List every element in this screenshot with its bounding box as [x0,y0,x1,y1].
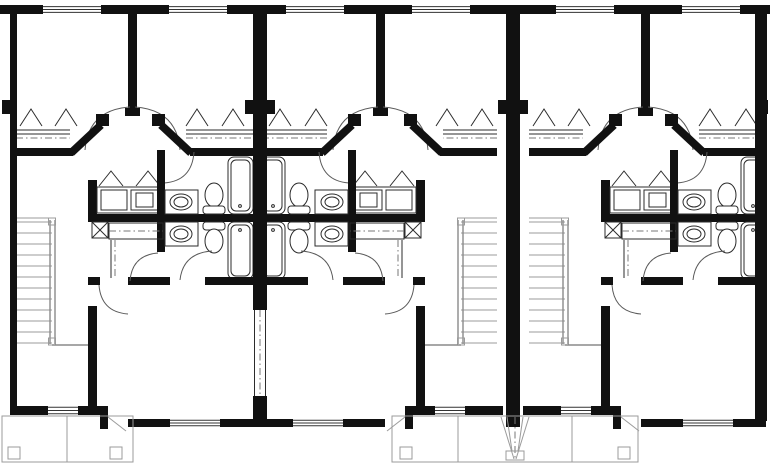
right-wall-pilaster [760,100,768,114]
right-wall [755,5,767,421]
left-wall [10,5,17,415]
left-wall-pilaster [2,100,10,114]
porch-post [400,447,412,459]
porch-post [618,447,630,459]
entry-steps [501,417,529,460]
unit-3 [523,14,766,431]
porch-post [110,447,122,459]
center-shared-porch [392,416,638,462]
unit-2 [260,14,503,431]
left-porch [2,416,133,462]
rear-wall [0,5,770,14]
floor-plan-page [0,0,770,465]
porch-post [8,447,20,459]
floor-plan-drawing [0,0,770,465]
unit-1 [10,14,253,431]
party-wall-2-3 [498,5,528,427]
